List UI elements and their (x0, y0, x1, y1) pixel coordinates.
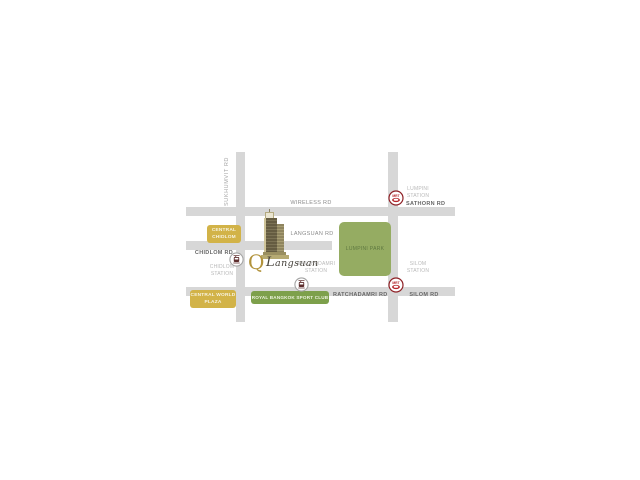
building-tower (264, 218, 277, 252)
mrt-station-icon: MRT (388, 277, 404, 293)
road-label-sukhumvit: SUKHUMVIT RD (224, 158, 230, 206)
mrt-station-icon: MRT (388, 190, 404, 206)
mrt-text: MRT (392, 281, 400, 285)
mrt-text: MRT (392, 194, 400, 198)
map-canvas: LUMPINI PARK CENTRAL CHIDLOM CENTRAL WOR… (0, 0, 640, 480)
station-chidlom-line2: STATION (202, 271, 242, 278)
road-label-langsuan: LANGSUAN RD (290, 231, 334, 237)
road-wireless-sathorn (186, 207, 455, 216)
building-side-tower (277, 224, 284, 252)
logo-langsuan-text: Langsuan (266, 255, 319, 270)
central-chidlom-line2: CHIDLOM (212, 235, 236, 240)
road-label-wireless: WIRELESS RD (288, 200, 334, 206)
central-chidlom-box: CENTRAL CHIDLOM (207, 225, 241, 243)
logo-q-letter: Q (248, 252, 264, 272)
bts-train-icon (294, 277, 309, 292)
q-langsuan-building-illustration (261, 210, 291, 260)
road-label-silom: SILOM RD (406, 292, 442, 298)
lumpini-park-label: LUMPINI PARK (346, 246, 385, 252)
station-label-lumpini: LUMPINI STATION (402, 186, 434, 199)
station-lumpini-line2: STATION (402, 193, 434, 200)
royal-bangkok-label: ROYAL BANGKOK SPORT CLUB (252, 295, 329, 300)
royal-bangkok-sport-club-box: ROYAL BANGKOK SPORT CLUB (251, 291, 329, 304)
road-label-sathorn: SATHORN RD (406, 201, 450, 207)
station-silom-line2: STATION (402, 268, 434, 275)
lumpini-park-area: LUMPINI PARK (339, 222, 391, 276)
road-label-ratchadamri: RATCHADAMRI RD (333, 292, 383, 298)
central-world-plaza-box: CENTRAL WORLD PLAZA (190, 290, 236, 308)
central-world-line2: PLAZA (205, 300, 222, 305)
bts-train-icon (229, 252, 244, 267)
central-world-line1: CENTRAL WORLD (191, 293, 236, 298)
central-chidlom-line1: CENTRAL (212, 228, 236, 233)
station-label-silom: SILOM STATION (402, 261, 434, 274)
